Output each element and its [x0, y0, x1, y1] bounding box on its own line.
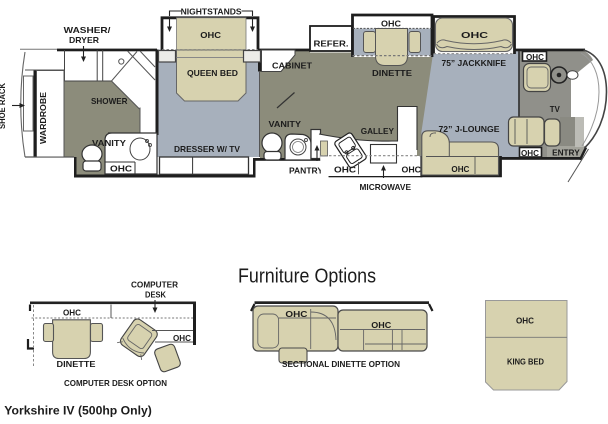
svg-text:SHOWER: SHOWER: [91, 96, 128, 106]
svg-text:WASHER/: WASHER/: [64, 25, 111, 35]
svg-text:VANITY: VANITY: [269, 119, 302, 129]
svg-text:COMPUTER: COMPUTER: [131, 280, 178, 290]
svg-text:75” JACKKNIFE: 75” JACKKNIFE: [442, 58, 507, 68]
svg-text:SECTIONAL DINETTE OPTION: SECTIONAL DINETTE OPTION: [282, 359, 400, 369]
svg-text:CABINET: CABINET: [272, 61, 313, 71]
svg-text:OHC: OHC: [334, 165, 356, 175]
svg-text:OHC: OHC: [516, 316, 534, 326]
svg-text:OHC: OHC: [521, 148, 539, 158]
svg-text:COMPUTER DESK OPTION: COMPUTER DESK OPTION: [64, 378, 167, 388]
svg-text:OHC: OHC: [173, 333, 191, 343]
svg-text:GALLEY: GALLEY: [361, 126, 395, 136]
svg-text:NIGHTSTANDS: NIGHTSTANDS: [181, 7, 242, 17]
svg-text:OHC: OHC: [371, 320, 391, 330]
svg-text:DINETTE: DINETTE: [372, 68, 412, 78]
svg-text:QUEEN BED: QUEEN BED: [187, 68, 238, 78]
svg-text:OHC: OHC: [200, 30, 221, 40]
svg-text:DRYER: DRYER: [69, 35, 99, 45]
svg-text:ENTRY: ENTRY: [552, 148, 580, 158]
svg-text:OHC: OHC: [285, 309, 307, 319]
svg-text:Furniture Options: Furniture Options: [238, 266, 376, 288]
svg-text:KING BED: KING BED: [507, 357, 544, 367]
svg-text:REFER.: REFER.: [314, 39, 349, 49]
svg-text:OHC: OHC: [461, 30, 488, 40]
svg-text:MICROWAVE: MICROWAVE: [360, 182, 412, 192]
svg-text:Yorkshire IV (500hp Only): Yorkshire IV (500hp Only): [4, 404, 152, 418]
svg-text:DRESSER W/ TV: DRESSER W/ TV: [174, 144, 240, 154]
svg-text:OHC: OHC: [526, 52, 544, 62]
svg-text:OHC: OHC: [381, 19, 401, 29]
svg-text:OHC: OHC: [63, 308, 81, 318]
svg-text:TV: TV: [550, 104, 560, 114]
svg-text:DESK: DESK: [145, 290, 167, 300]
svg-text:OHC: OHC: [451, 164, 469, 174]
svg-text:SHOE RACK: SHOE RACK: [0, 82, 7, 129]
svg-text:OHC: OHC: [110, 164, 132, 174]
svg-text:PANTRY: PANTRY: [289, 166, 323, 176]
svg-text:72” J-LOUNGE: 72” J-LOUNGE: [439, 124, 500, 134]
svg-text:OHC: OHC: [402, 165, 422, 175]
svg-text:WARDROBE: WARDROBE: [38, 92, 48, 144]
svg-text:DINETTE: DINETTE: [57, 359, 96, 369]
